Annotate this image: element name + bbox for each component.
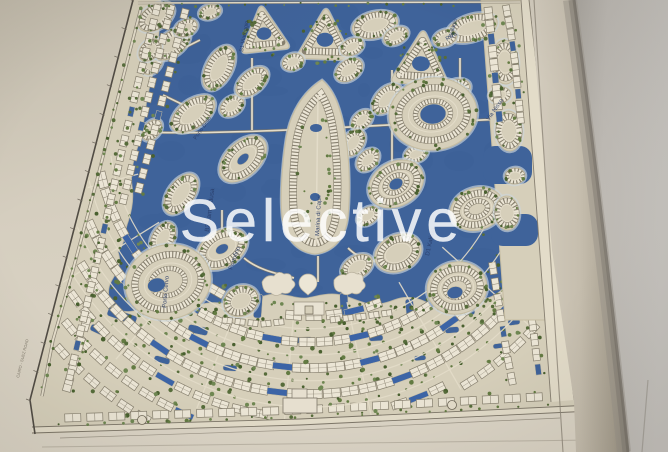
svg-text:Selective: Selective xyxy=(180,188,464,254)
